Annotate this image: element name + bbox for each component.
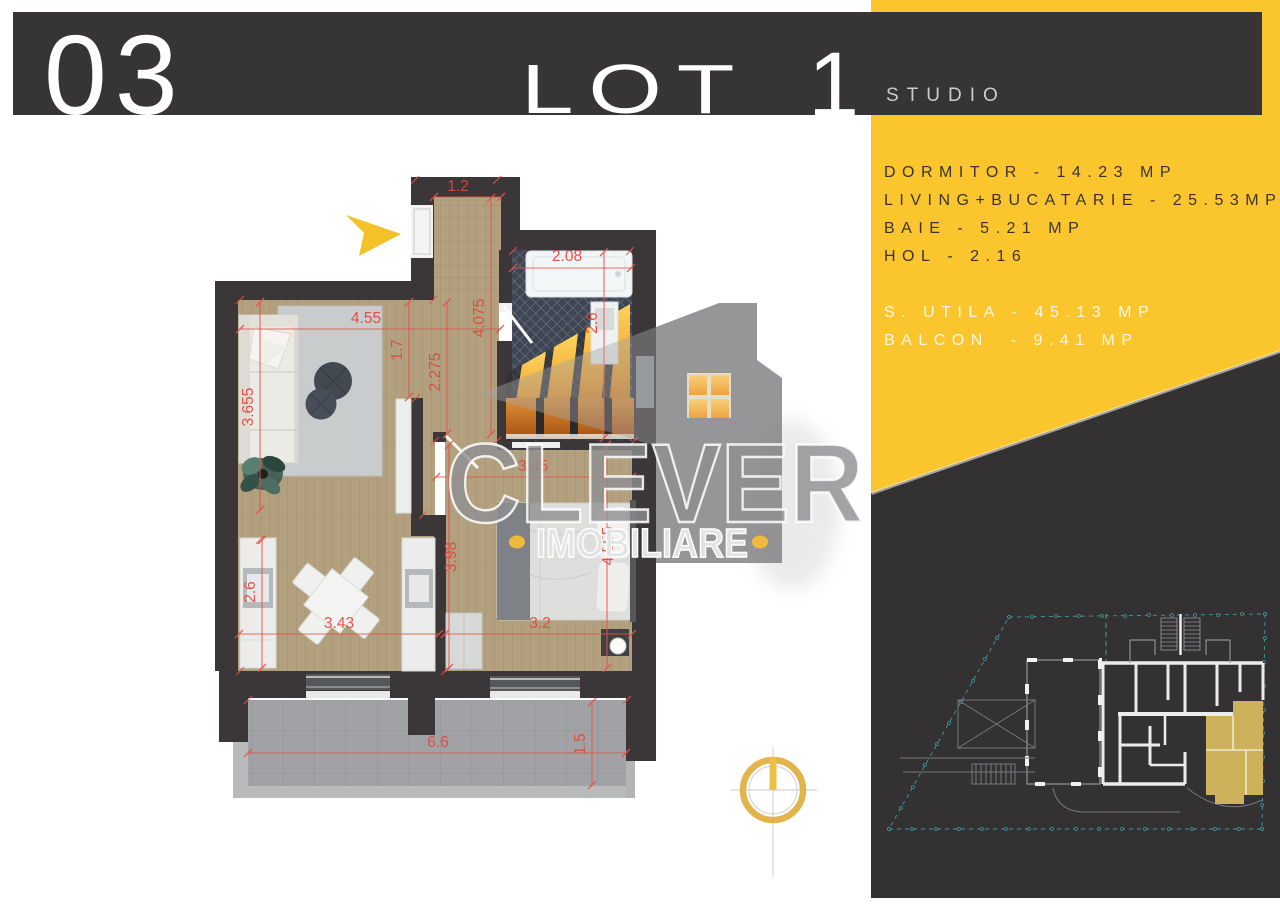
- svg-text:3.2: 3.2: [529, 615, 551, 632]
- svg-text:2.08: 2.08: [552, 248, 582, 265]
- svg-text:2.6: 2.6: [242, 581, 259, 603]
- svg-text:3.98: 3.98: [443, 542, 460, 572]
- svg-text:3.655: 3.655: [240, 388, 257, 427]
- svg-text:2.275: 2.275: [427, 353, 444, 392]
- svg-text:2.6: 2.6: [584, 312, 601, 334]
- svg-text:IMOBILIARE: IMOBILIARE: [536, 520, 748, 566]
- svg-text:4.075: 4.075: [471, 299, 488, 338]
- svg-text:1.7: 1.7: [389, 339, 406, 361]
- svg-text:3.43: 3.43: [324, 615, 354, 632]
- svg-text:1.2: 1.2: [447, 178, 469, 195]
- svg-text:6.6: 6.6: [427, 734, 449, 751]
- svg-text:1.5: 1.5: [572, 733, 589, 755]
- svg-text:4.55: 4.55: [351, 310, 381, 327]
